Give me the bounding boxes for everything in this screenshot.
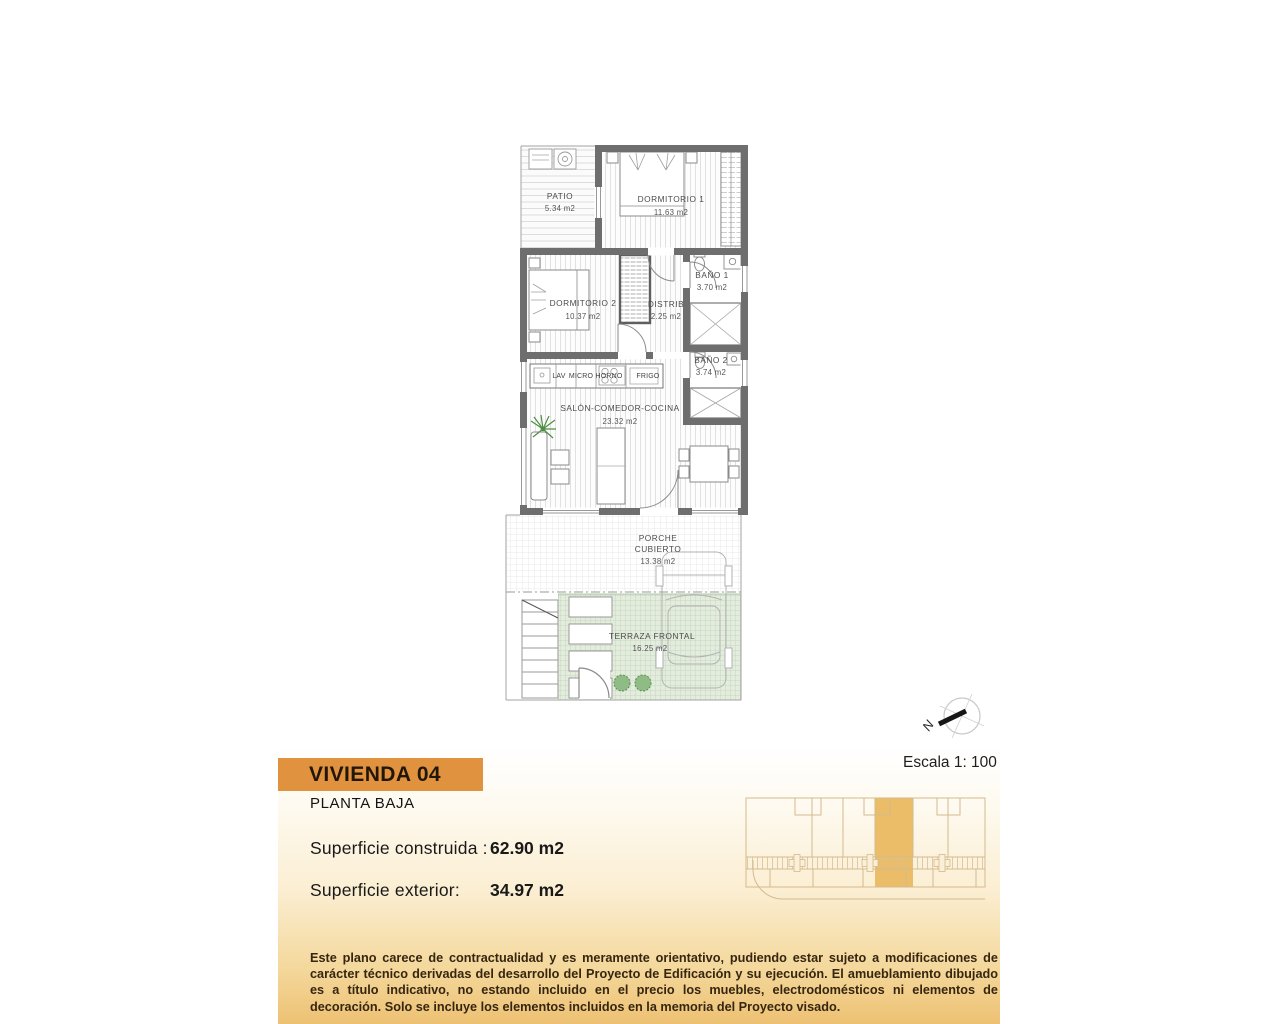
kitchen-label-frigo: FRIGO [636,373,660,380]
room-area-dormitorio2: 10.37 m2 [566,312,601,321]
metric-label-construida: Superficie construida : [310,838,488,859]
porche-floor [506,515,741,592]
metric-row-exterior: Superficie exterior: 34.97 m2 [310,880,790,902]
room-area-dormitorio1: 11.63 m2 [654,208,688,217]
floor-plan-svg: PATIO 5.34 m2 DORMITORIO 1 11.63 m2 DORM… [0,0,1280,1024]
bed-dormitorio1-icon [607,152,697,216]
site-plan-highlight [875,798,913,887]
room-label-bano1: BAÑO 1 [695,270,728,280]
compass-north-label: N [919,717,937,734]
metric-label-exterior: Superficie exterior: [310,880,460,901]
disclaimer-text: Este plano carece de contractualidad y e… [310,950,998,1015]
kitchen-labels: LAV MICRO HORNO FRIGO [552,373,660,380]
kitchen-label-lav: LAV [552,373,565,380]
room-label-porche-2: CUBIERTO [635,544,682,554]
unit-title-banner: VIVIENDA 04 [278,758,483,791]
kitchen-label-horno: HORNO [595,373,622,380]
room-area-terraza: 16.25 m2 [633,644,668,653]
room-label-dormitorio1: DORMITORIO 1 [638,194,705,204]
plan-sheet: PATIO 5.34 m2 DORMITORIO 1 11.63 m2 DORM… [0,0,1280,1024]
unit-title: VIVIENDA 04 [309,763,441,787]
stairs-icon [522,600,558,698]
closet-icon [620,255,650,323]
room-label-dormitorio2: DORMITORIO 2 [550,298,617,308]
sideboard-icon [597,428,625,504]
metric-row-construida: Superficie construida : 62.90 m2 [310,838,790,860]
room-area-distrib: 2.25 m2 [651,312,681,321]
room-label-distrib: DISTRIB [648,299,684,309]
room-label-salon: SALÓN-COMEDOR-COCINA [560,403,679,413]
bathroom1-fixtures [690,250,741,345]
room-area-bano1: 3.70 m2 [697,283,727,292]
compass-icon: N [919,694,984,738]
room-area-bano2: 3.74 m2 [696,368,726,377]
washbasin-icon [727,353,741,365]
room-label-porche: PORCHE [639,533,678,543]
room-label-bano2: BAÑO 2 [694,355,727,365]
scale-label: Escala 1: 100 [903,754,997,772]
room-area-patio: 5.34 m2 [545,204,575,213]
room-label-terraza: TERRAZA FRONTAL [609,631,695,641]
room-label-patio: PATIO [547,191,573,201]
washbasin-icon [724,254,741,269]
metric-value-construida: 62.90 m2 [490,838,564,859]
floor-label: PLANTA BAJA [310,795,415,812]
kitchen-label-micro: MICRO [569,373,594,380]
metric-value-exterior: 34.97 m2 [490,880,564,901]
room-area-porche: 13.38 m2 [641,557,676,566]
room-area-salon: 23.32 m2 [603,417,638,426]
